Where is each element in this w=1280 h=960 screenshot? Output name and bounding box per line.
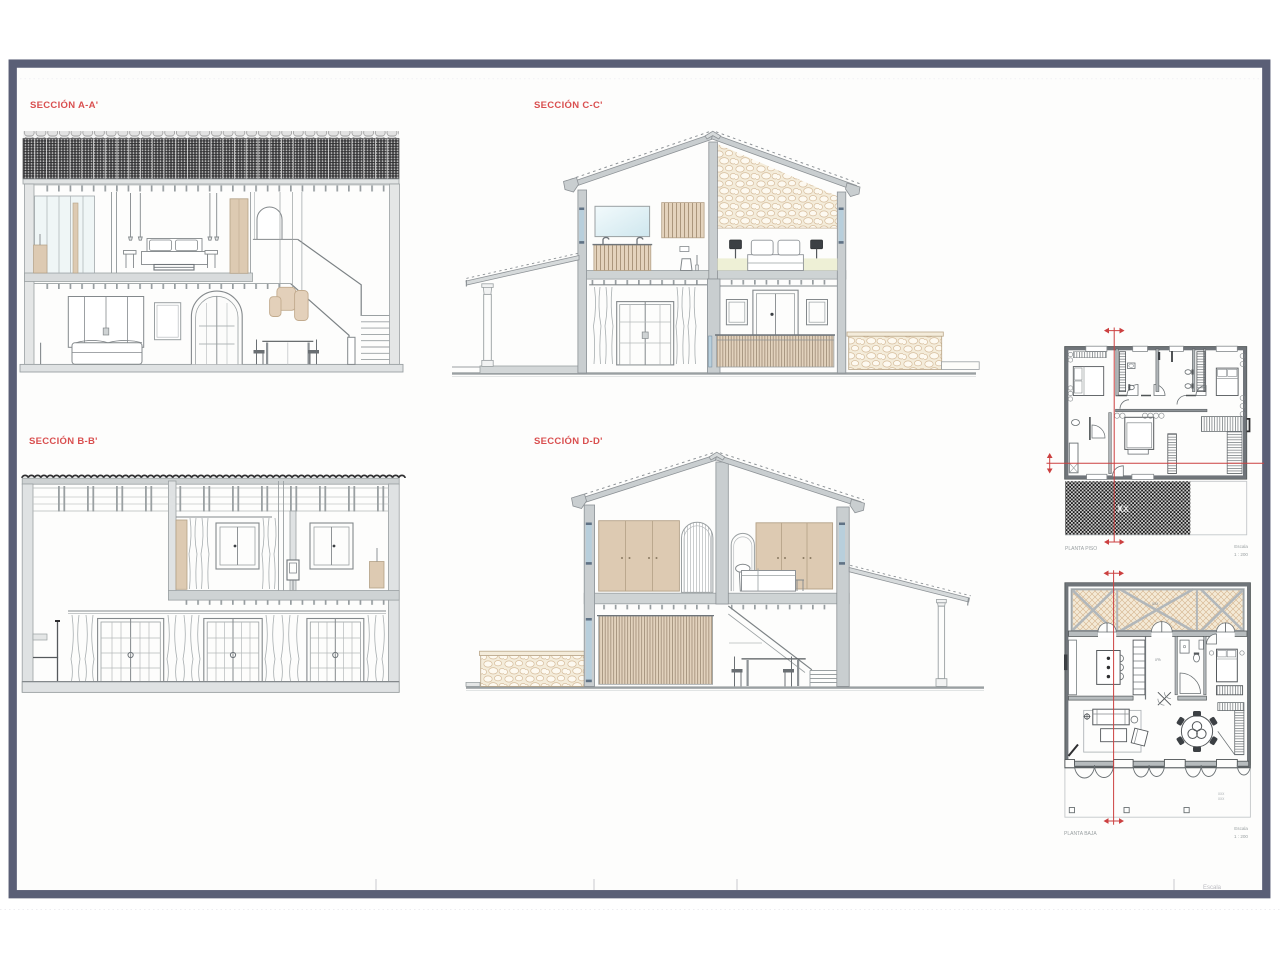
svg-text:SECCIÓN C-C': SECCIÓN C-C' [534, 99, 603, 111]
svg-text:Escala: Escala [1234, 826, 1248, 831]
svg-text:SECCIÓN B-B': SECCIÓN B-B' [29, 435, 98, 447]
svg-text:PLANTA PISO: PLANTA PISO [1065, 546, 1097, 552]
svg-text:PLANTA BAJA: PLANTA BAJA [1064, 831, 1097, 837]
svg-text:Escala: Escala [1234, 544, 1248, 549]
svg-text:1 : 200: 1 : 200 [1234, 552, 1248, 557]
svg-text:SECCIÓN D-D': SECCIÓN D-D' [534, 435, 603, 447]
svg-text:x%: x% [1155, 657, 1161, 662]
svg-text:xxx: xxx [1152, 601, 1159, 606]
svg-text:xxx: xxx [1218, 796, 1225, 801]
svg-text:Escala: Escala [1203, 885, 1222, 891]
svg-text:XX: XX [1117, 504, 1129, 514]
svg-text:SECCIÓN A-A': SECCIÓN A-A' [30, 99, 98, 111]
svg-text:1 : 200: 1 : 200 [1234, 834, 1248, 839]
